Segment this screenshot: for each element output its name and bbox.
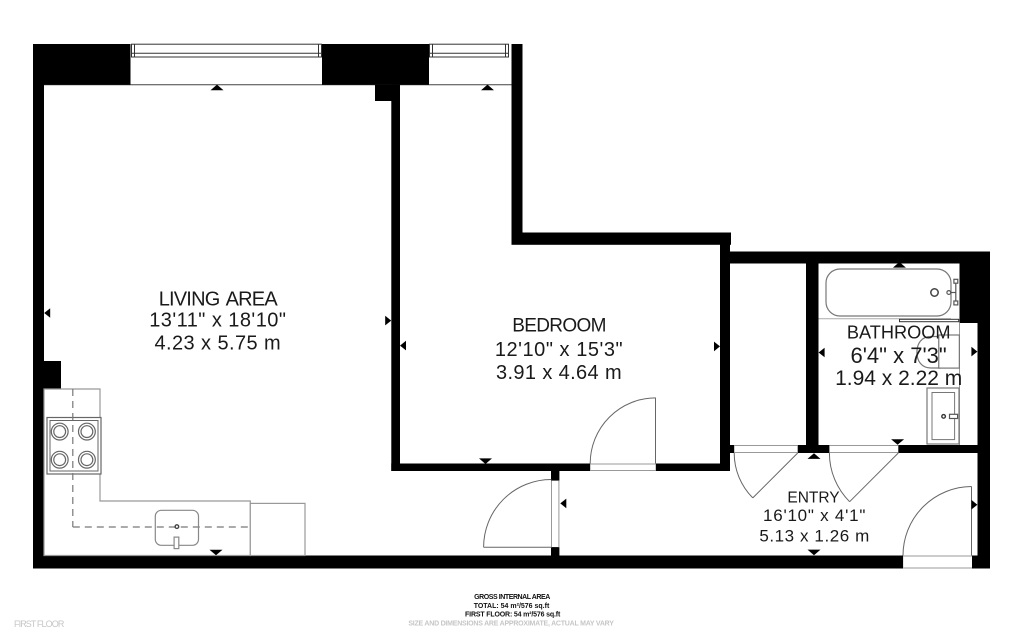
svg-text:12'10" x 15'3": 12'10" x 15'3" [495,339,623,361]
svg-text:GROSS INTERNAL AREA: GROSS INTERNAL AREA [474,594,550,601]
svg-text:BEDROOM: BEDROOM [512,316,605,337]
svg-text:SIZE AND DIMENSIONS ARE APPROX: SIZE AND DIMENSIONS ARE APPROXIMATE, ACT… [408,621,614,628]
svg-text:1.94 x 2.22 m: 1.94 x 2.22 m [835,367,962,390]
svg-text:5.13 x 1.26 m: 5.13 x 1.26 m [759,527,870,546]
svg-text:ENTRY: ENTRY [787,490,839,507]
svg-text:BATHROOM: BATHROOM [847,322,951,342]
svg-text:4.23 x 5.75 m: 4.23 x 5.75 m [154,333,281,355]
svg-text:3.91 x 4.64 m: 3.91 x 4.64 m [496,362,622,384]
svg-text:6'4" x 7'3": 6'4" x 7'3" [851,343,947,368]
svg-text:TOTAL: 54 m²/576 sq.ft: TOTAL: 54 m²/576 sq.ft [474,603,550,610]
svg-text:13'11" x 18'10": 13'11" x 18'10" [149,310,286,332]
svg-text:LIVING AREA: LIVING AREA [159,288,279,310]
svg-text:FIRST FLOOR: 54 m²/576 sq.ft: FIRST FLOOR: 54 m²/576 sq.ft [465,612,561,619]
svg-text:FIRST FLOOR: FIRST FLOOR [14,619,65,629]
svg-text:16'10" x 4'1": 16'10" x 4'1" [763,506,866,525]
